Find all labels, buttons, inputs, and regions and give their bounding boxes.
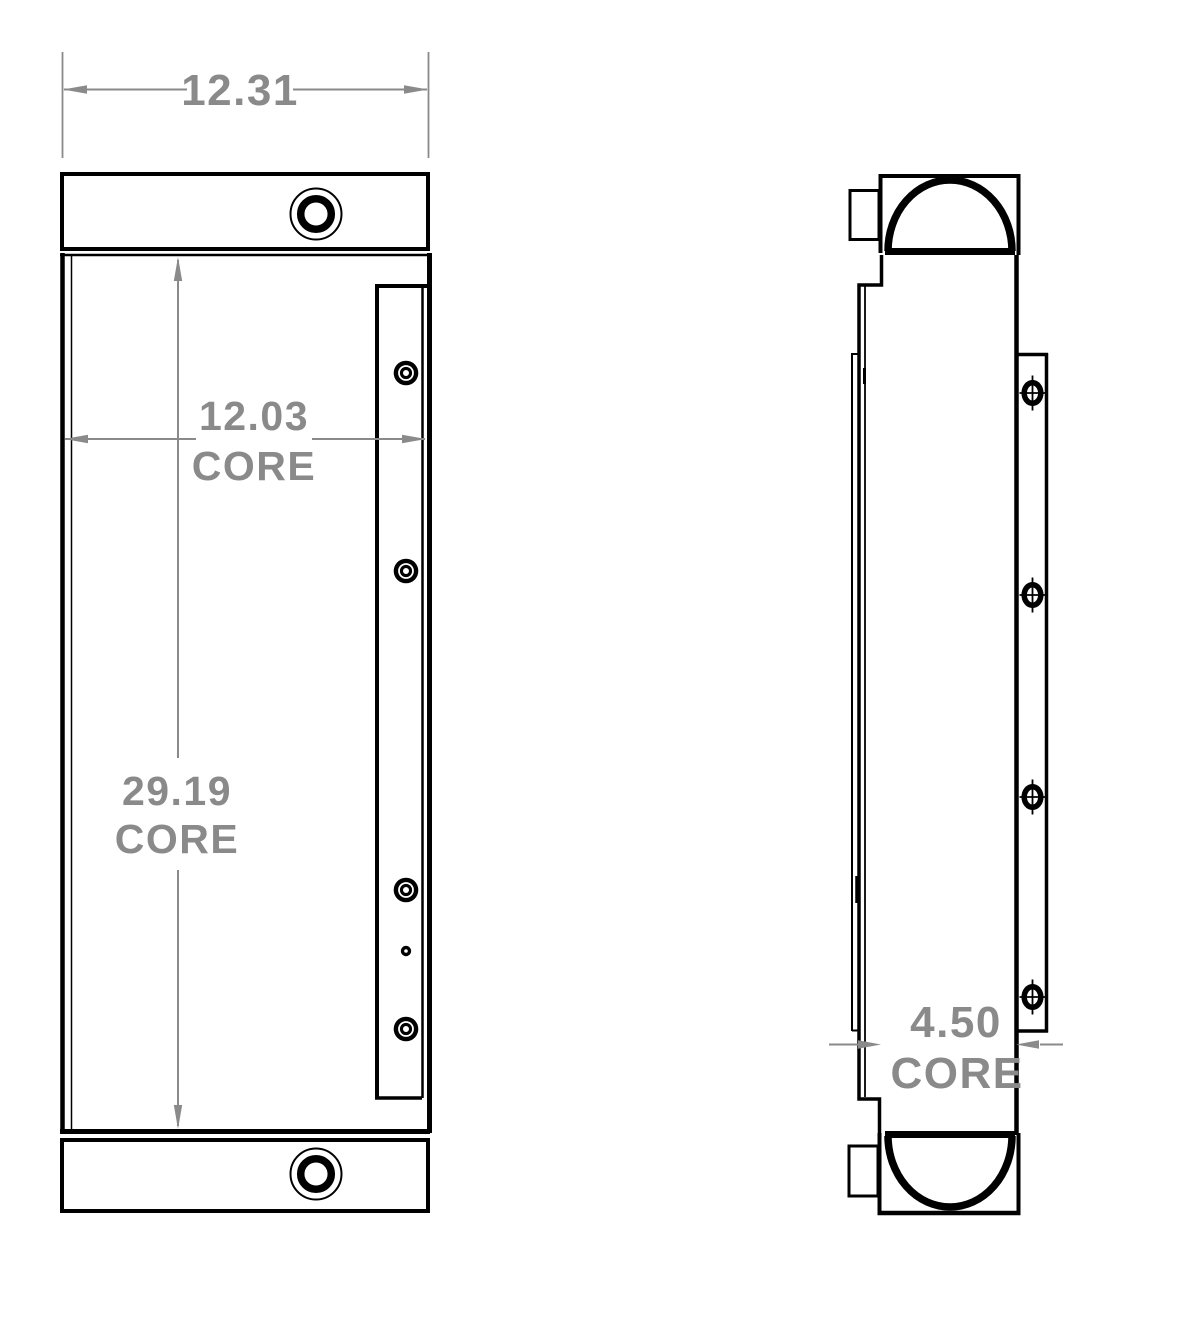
top-port-icon bbox=[291, 189, 342, 240]
bolt-hole-icon bbox=[1020, 578, 1046, 613]
bolt-icon bbox=[394, 878, 419, 903]
dim-core-width-value: 12.03 bbox=[199, 393, 309, 439]
bottom-port-icon bbox=[291, 1149, 342, 1200]
body-left-profile bbox=[859, 255, 882, 1135]
mounting-flange-side bbox=[1017, 353, 1048, 1033]
bottom-tank bbox=[62, 1140, 428, 1211]
bottom-tank-side bbox=[849, 1133, 1021, 1215]
bolt-icon bbox=[394, 1017, 419, 1042]
bolt-icon bbox=[394, 559, 419, 584]
technical-drawing: 12.31 12.03 CORE 29.19 CORE 4.50 CORE bbox=[0, 0, 1201, 1341]
dim-core-width: 12.03 CORE bbox=[64, 393, 426, 489]
small-hole-icon bbox=[401, 946, 411, 956]
top-port-dome-icon bbox=[888, 180, 1012, 251]
mounting-bracket-front bbox=[375, 286, 429, 1098]
bolt-icon bbox=[394, 361, 419, 386]
bottom-tab bbox=[849, 1146, 878, 1196]
top-tank bbox=[62, 174, 428, 249]
bolt-hole-icon bbox=[1020, 376, 1046, 411]
bolt-hole-icon bbox=[1020, 980, 1046, 1015]
dim-core-height: 29.19 CORE bbox=[115, 257, 239, 1129]
dim-core-width-label: CORE bbox=[192, 443, 316, 489]
dim-overall-width: 12.31 bbox=[63, 52, 429, 158]
top-tab bbox=[850, 191, 879, 240]
bolt-hole-icon bbox=[1020, 780, 1046, 815]
dim-core-height-label: CORE bbox=[115, 816, 239, 862]
bottom-port-dome-icon bbox=[888, 1136, 1012, 1207]
dim-core-depth-value: 4.50 bbox=[910, 998, 1002, 1047]
dim-overall-width-value: 12.31 bbox=[181, 66, 299, 115]
dim-core-depth-label: CORE bbox=[890, 1049, 1023, 1098]
top-tank-side bbox=[850, 174, 1021, 255]
dim-core-height-value: 29.19 bbox=[122, 768, 232, 814]
front-view bbox=[60, 174, 430, 1211]
